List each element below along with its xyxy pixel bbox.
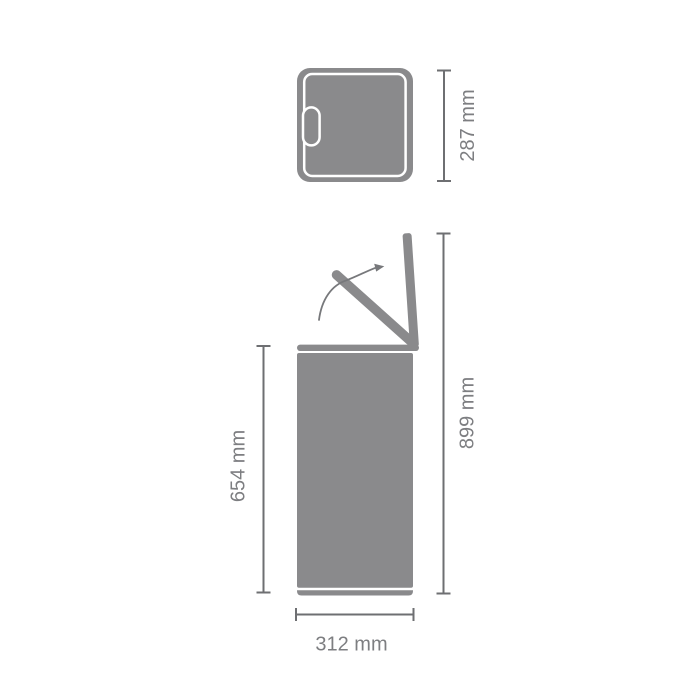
svg-text:287 mm: 287 mm: [457, 89, 479, 161]
svg-text:312 mm: 312 mm: [315, 634, 387, 656]
svg-text:654 mm: 654 mm: [228, 430, 250, 502]
svg-text:899 mm: 899 mm: [457, 377, 479, 449]
